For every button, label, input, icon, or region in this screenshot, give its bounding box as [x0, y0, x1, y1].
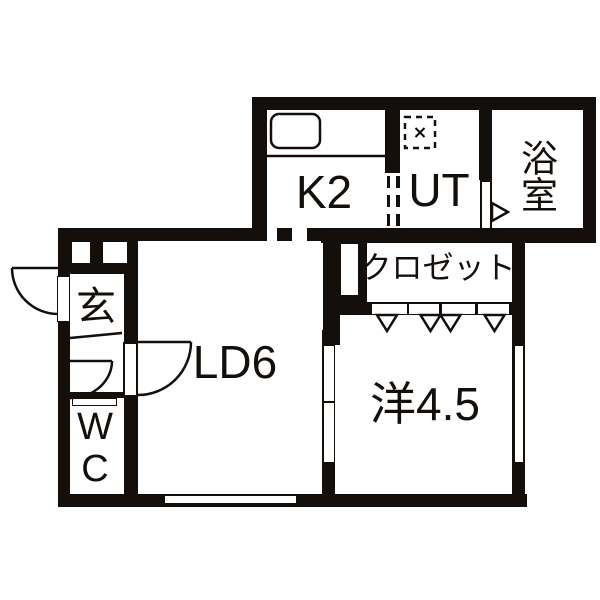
wc-door-threshold	[72, 398, 117, 406]
label-closet: クロゼット	[361, 253, 516, 284]
wall-utility-bath	[479, 110, 492, 180]
closet-fold-triangle-icon	[485, 315, 505, 331]
closet-door-panel	[409, 304, 439, 314]
bath-door-triangle-icon	[492, 203, 508, 221]
passage-dash	[277, 228, 292, 241]
washer-icon	[405, 117, 435, 148]
sink-icon	[271, 114, 320, 148]
label-western-room: 洋4.5	[370, 381, 480, 427]
entrance-niche-left	[72, 242, 90, 263]
bath-door-leaf	[480, 180, 492, 230]
label-living-dining: LD6	[193, 339, 277, 385]
wall-lower-top	[58, 228, 267, 241]
opening-dash	[396, 176, 400, 188]
wall-upper-top	[252, 97, 596, 110]
floorplan: K2 UT 浴室 クロゼット LD6 洋4.5 玄 WC	[0, 0, 600, 600]
opening-dash	[396, 195, 400, 207]
label-entrance: 玄	[76, 287, 116, 327]
closet-door-panel	[442, 304, 475, 314]
wall-outer-left	[58, 228, 70, 507]
wall-upper-bottom	[321, 228, 596, 243]
label-kitchen: K2	[296, 169, 352, 215]
passage-dash	[307, 228, 321, 241]
wall-kitchen-left	[252, 97, 267, 241]
wall-hall-lower	[124, 397, 138, 495]
washer-cross	[416, 128, 425, 137]
closet-door-panel	[372, 304, 407, 314]
western-sliding-door-divider	[323, 401, 335, 403]
wall-kitchen-utility	[385, 110, 400, 173]
closet-fold-triangle-icon	[377, 315, 397, 331]
western-sliding-door	[323, 345, 335, 463]
entrance-door-opening	[57, 276, 70, 322]
entrance-door-arc	[12, 268, 58, 314]
label-utility: UT	[408, 167, 469, 213]
living-door-arc	[138, 342, 191, 395]
living-window	[164, 495, 297, 504]
opening-dash	[387, 214, 391, 226]
closet-fold-triangle-icon	[441, 315, 461, 331]
genkan-step-line	[70, 333, 122, 338]
opening-dash	[387, 195, 391, 207]
closet-side-niche	[341, 244, 358, 295]
label-toilet: WC	[76, 406, 114, 490]
wall-upper-right	[583, 97, 596, 243]
washer-cross	[416, 128, 425, 137]
entrance-niche-right	[103, 242, 127, 263]
closet-fold-triangle-icon	[421, 315, 441, 331]
opening-dash	[387, 176, 391, 188]
western-window	[514, 345, 524, 463]
label-bathroom: 浴室	[518, 139, 555, 213]
closet-door-panel	[478, 304, 509, 314]
opening-dash	[396, 214, 400, 226]
living-door-leaf	[123, 342, 138, 397]
